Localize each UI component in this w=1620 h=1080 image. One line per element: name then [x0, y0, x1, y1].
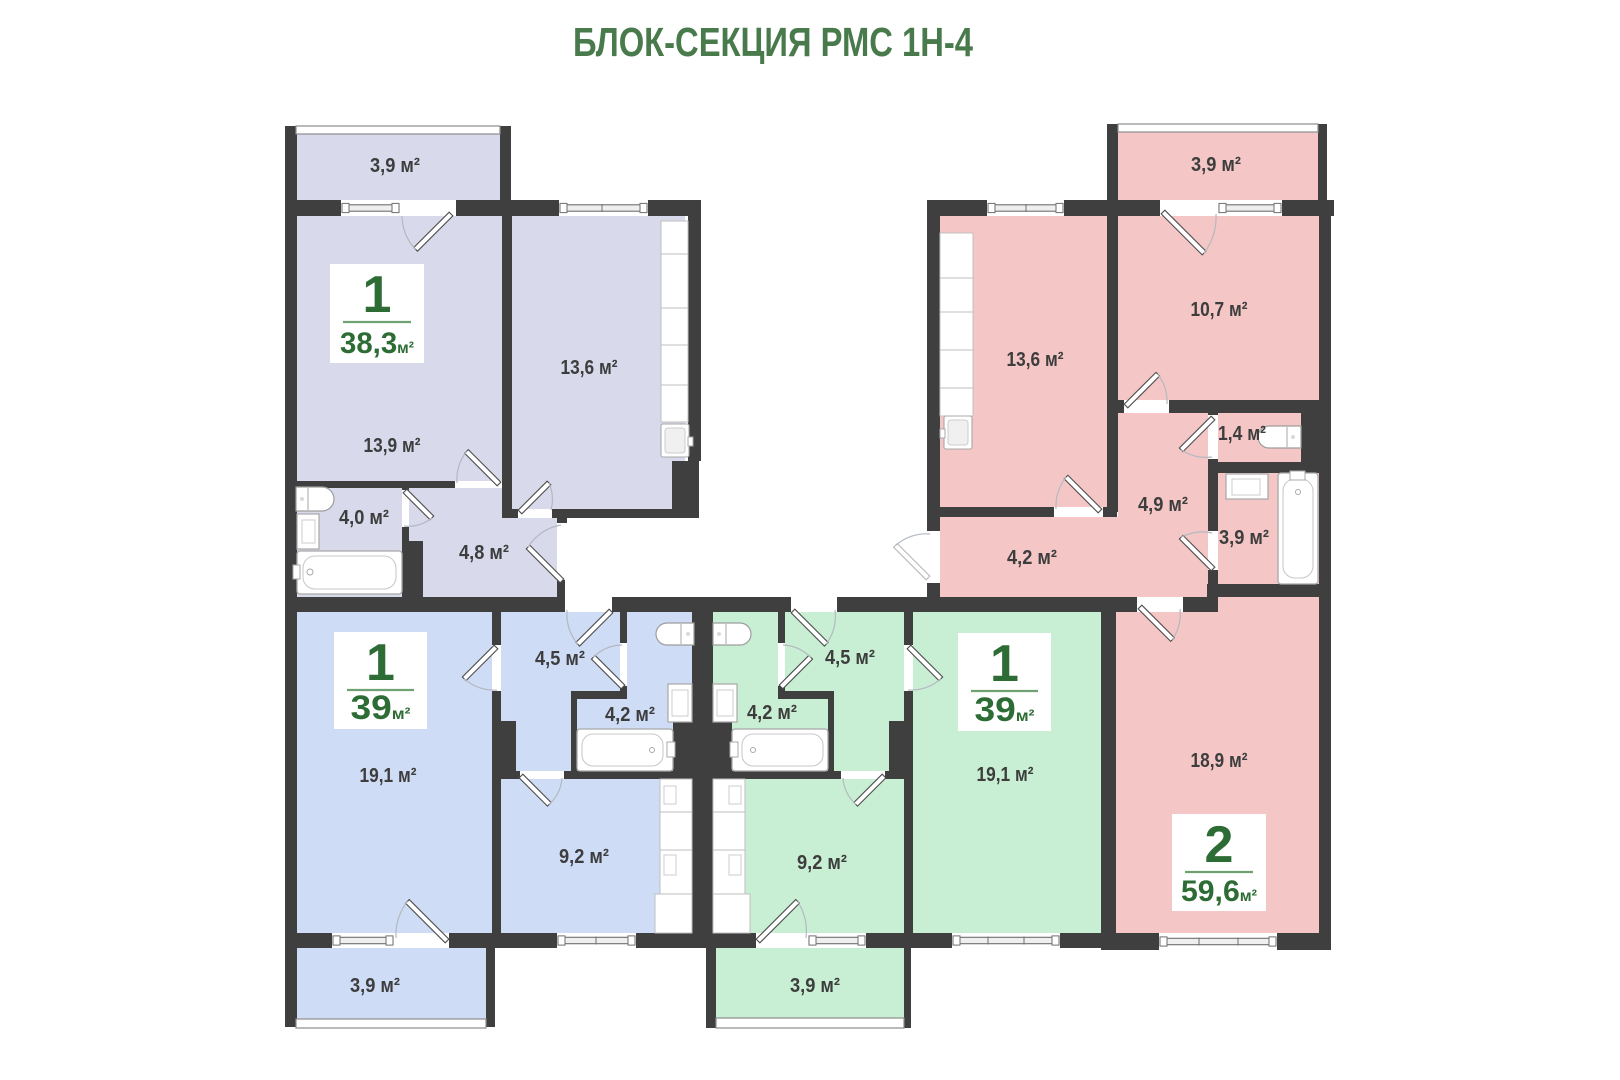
svg-text:3,9 м²: 3,9 м²	[370, 155, 420, 177]
svg-text:9,2 м²: 9,2 м²	[559, 846, 609, 868]
svg-text:4,2 м²: 4,2 м²	[747, 702, 797, 724]
svg-text:3,9 м²: 3,9 м²	[790, 975, 840, 997]
svg-text:18,9 м²: 18,9 м²	[1191, 750, 1248, 772]
svg-text:13,9 м²: 13,9 м²	[364, 435, 421, 457]
svg-text:10,7 м²: 10,7 м²	[1191, 299, 1248, 321]
svg-text:4,9 м²: 4,9 м²	[1138, 494, 1188, 516]
svg-text:1: 1	[990, 635, 1019, 693]
svg-text:4,2 м²: 4,2 м²	[1007, 547, 1057, 569]
svg-text:4,5 м²: 4,5 м²	[535, 648, 585, 670]
svg-text:1,4 м²: 1,4 м²	[1218, 423, 1266, 445]
svg-text:1: 1	[366, 634, 395, 692]
svg-text:4,2 м²: 4,2 м²	[605, 704, 655, 726]
svg-text:19,1 м²: 19,1 м²	[977, 764, 1034, 786]
svg-text:3,9 м²: 3,9 м²	[350, 975, 400, 997]
svg-text:3,9 м²: 3,9 м²	[1219, 527, 1269, 549]
svg-text:4,5 м²: 4,5 м²	[825, 647, 875, 669]
svg-text:4,8 м²: 4,8 м²	[459, 542, 509, 564]
svg-text:2: 2	[1205, 816, 1234, 874]
svg-text:19,1 м²: 19,1 м²	[360, 765, 417, 787]
svg-text:БЛОК-СЕКЦИЯ РМС 1Н-4: БЛОК-СЕКЦИЯ РМС 1Н-4	[573, 19, 973, 65]
svg-text:1: 1	[363, 266, 392, 324]
svg-text:9,2 м²: 9,2 м²	[797, 852, 847, 874]
svg-text:13,6 м²: 13,6 м²	[1007, 349, 1064, 371]
svg-text:3,9 м²: 3,9 м²	[1191, 154, 1241, 176]
svg-text:4,0 м²: 4,0 м²	[339, 507, 389, 529]
svg-text:13,6 м²: 13,6 м²	[561, 357, 618, 379]
